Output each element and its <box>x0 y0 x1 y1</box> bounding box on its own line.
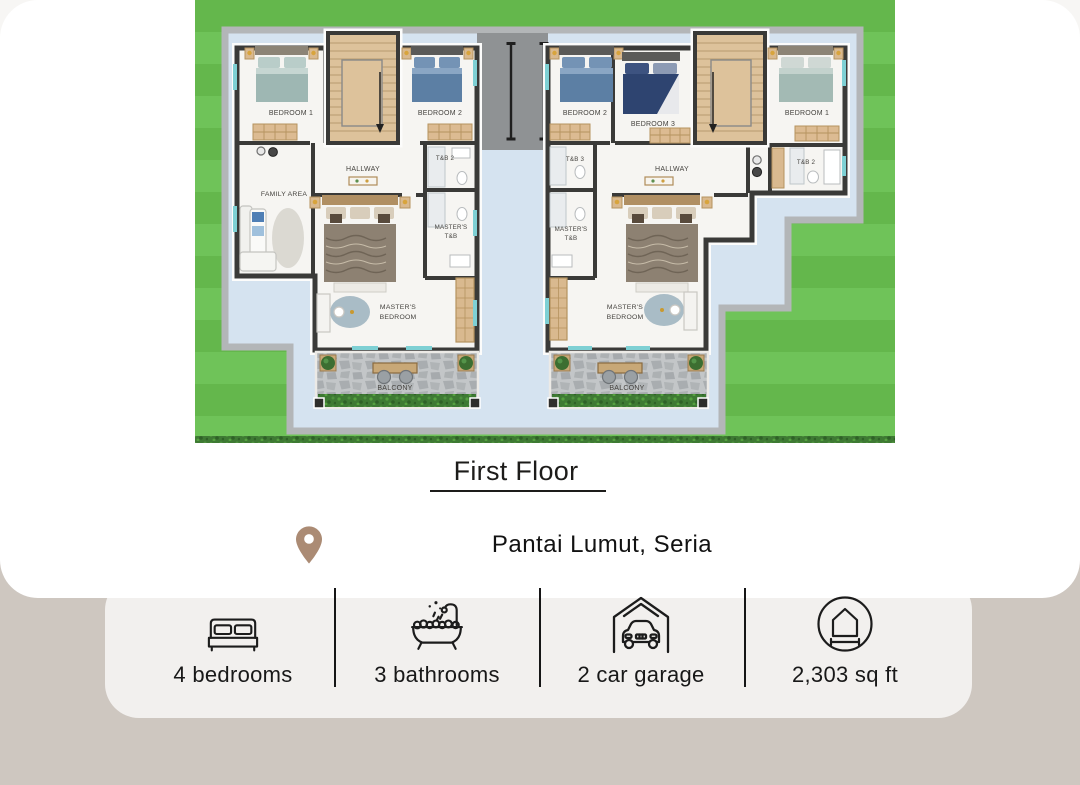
right-master-bedroom-label-1: MASTER'S <box>607 304 643 311</box>
right-staircase <box>695 33 765 143</box>
floor-title: First Floor <box>454 456 579 487</box>
area-icon <box>815 590 875 654</box>
listing-card: BEDROOM 1 BEDROOM 2 HALLWAY T&B 2 FAMILY… <box>0 0 1080 598</box>
left-tb2-label: T&B 2 <box>436 155 455 162</box>
location-pin-icon <box>296 526 322 564</box>
feature-garage-label: 2 car garage <box>577 662 704 688</box>
right-wardrobe <box>550 278 567 340</box>
right-console-table <box>645 177 673 185</box>
right-bedroom1-bed <box>768 46 843 102</box>
right-bedroom2-label: BEDROOM 2 <box>563 110 607 117</box>
feature-bathrooms: 3 bathrooms <box>342 584 532 688</box>
left-master-bedroom-label-2: BEDROOM <box>380 314 417 321</box>
right-vanity <box>684 292 697 330</box>
right-masters-tb-label-2: T&B <box>565 235 578 242</box>
right-utility-wardrobe <box>772 148 784 188</box>
feature-bathrooms-label: 3 bathrooms <box>374 662 500 688</box>
right-balcony-label: BALCONY <box>609 385 644 392</box>
left-balcony: BALCONY <box>314 352 480 408</box>
title-underline <box>430 490 606 492</box>
location-text: Pantai Lumut, Seria <box>492 531 712 559</box>
right-bedroom3-label: BEDROOM 3 <box>631 121 675 128</box>
feature-garage: 2 car garage <box>546 584 736 688</box>
left-appliance-2 <box>269 148 278 157</box>
left-appliance-1 <box>257 147 265 155</box>
feature-area-label: 2,303 sq ft <box>792 662 898 688</box>
feature-bedrooms: 4 bedrooms <box>138 584 328 688</box>
left-staircase <box>328 33 398 143</box>
left-bedroom1-label: BEDROOM 1 <box>269 110 313 117</box>
left-masters-tb-label-2: T&B <box>445 233 458 240</box>
bathtub-icon <box>408 590 466 654</box>
driveway-strip <box>477 33 548 150</box>
left-vanity <box>317 294 330 332</box>
right-hallway-label: HALLWAY <box>655 166 689 173</box>
left-console-table <box>349 177 377 185</box>
listing-flyer: Amin Yussuf SELLING PRICE <box>0 0 1080 785</box>
left-hallway-label: HALLWAY <box>346 166 380 173</box>
right-appliance-1 <box>753 156 761 164</box>
garage-icon <box>609 590 673 654</box>
right-tb2-label: T&B 2 <box>797 159 816 166</box>
bed-icon <box>206 590 260 654</box>
right-master-bedroom-label-2: BEDROOM <box>607 314 644 321</box>
left-family-area-label: FAMILY AREA <box>261 191 308 198</box>
floor-plan-image: BEDROOM 1 BEDROOM 2 HALLWAY T&B 2 FAMILY… <box>195 0 895 443</box>
left-master-bedroom-label-1: MASTER'S <box>380 304 416 311</box>
right-bedroom1-label: BEDROOM 1 <box>785 110 829 117</box>
right-appliance-2 <box>752 167 761 176</box>
right-masters-tb-label-1: MASTER'S <box>555 226 588 233</box>
feature-divider-2 <box>539 588 541 687</box>
feature-divider-1 <box>334 588 336 687</box>
left-masters-tb-label-1: MASTER'S <box>435 224 468 231</box>
right-tb3-label: T&B 3 <box>566 156 585 163</box>
floor-plan-svg: BEDROOM 1 BEDROOM 2 HALLWAY T&B 2 FAMILY… <box>195 0 895 443</box>
right-balcony: BALCONY <box>548 352 708 408</box>
left-balcony-label: BALCONY <box>377 385 412 392</box>
right-bedroom2-bed <box>550 46 623 102</box>
left-bedroom2-label: BEDROOM 2 <box>418 110 462 117</box>
feature-area: 2,303 sq ft <box>750 584 940 688</box>
bottom-hedge <box>195 436 895 443</box>
feature-bedrooms-label: 4 bedrooms <box>173 662 292 688</box>
feature-divider-3 <box>744 588 746 687</box>
left-wardrobe <box>456 278 474 342</box>
